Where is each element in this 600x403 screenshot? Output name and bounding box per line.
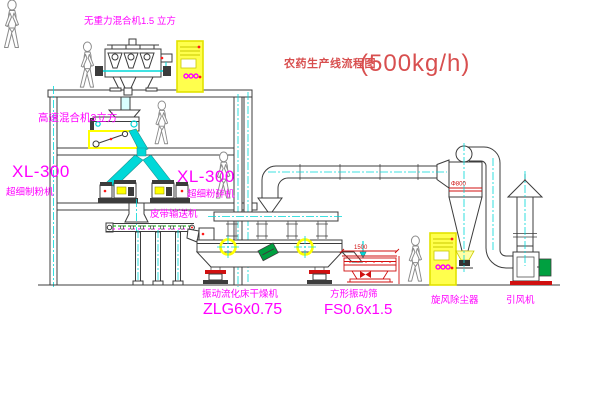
- screen-motor-symbol: [360, 271, 371, 278]
- induced-draft-fan: [510, 246, 552, 285]
- conveyor-legs: [133, 230, 183, 285]
- label-mill-left-name: 超细制粉机: [6, 186, 54, 198]
- person-figure: [155, 101, 168, 144]
- high-speed-mixer: [89, 97, 148, 152]
- label-mill-right-name: 超细粉碎机: [187, 188, 235, 200]
- dimension-screen-length: 1500: [354, 245, 368, 251]
- dryer-support-right: [307, 267, 332, 284]
- title-capacity: (500kg/h): [360, 50, 470, 77]
- fluid-bed-dryer: [197, 212, 362, 284]
- label-screen-model: FS0.6x1.5: [324, 301, 392, 318]
- dimension-cyclone-diameter: Φ800: [451, 182, 466, 188]
- cad-flow-diagram-screenshot: 无重力混合机1.5 立方 高速混合机3立方 XL-300 超细制粉机 XL-30…: [0, 0, 600, 403]
- label-fan: 引风机: [506, 294, 535, 306]
- control-cabinet-right: [430, 233, 456, 285]
- control-cabinet-top: [177, 41, 203, 92]
- label-screen-name: 方形振动筛: [330, 288, 378, 300]
- label-mill-left-model: XL-300: [12, 162, 70, 181]
- vibrating-screen: [340, 241, 399, 284]
- label-dryer-name: 振动流化床干燥机: [202, 288, 279, 300]
- dryer-support-left: [203, 267, 228, 284]
- label-dryer-model: ZLG6x0.75: [203, 301, 282, 318]
- person-figure: [80, 42, 93, 87]
- dryer-inlet-box: [199, 228, 214, 240]
- fan-base: [510, 281, 552, 285]
- person-figure-template: [5, 0, 19, 48]
- belt-conveyor: [106, 223, 199, 285]
- drawing-title: 农药生产线流程图 (500kg/h): [283, 50, 470, 77]
- label-gravity-mixer: 无重力混合机1.5 立方: [84, 15, 176, 27]
- cad-drawing: 无重力混合机1.5 立方 高速混合机3立方 XL-300 超细制粉机 XL-30…: [0, 0, 600, 403]
- mill-left: [98, 180, 138, 203]
- label-belt-conveyor: 皮带输送机: [150, 208, 198, 220]
- label-cyclone: 旋风除尘器: [431, 294, 479, 306]
- gravity-free-mixer: [95, 39, 172, 95]
- dryer-discharge-chute: [342, 252, 362, 262]
- exhaust-duct: [258, 160, 449, 212]
- label-high-speed-mixer: 高速混合机3立方: [38, 111, 117, 124]
- label-mill-right-model: XL-300: [177, 167, 235, 186]
- fan-motor: [539, 259, 551, 276]
- person-figure: [408, 236, 421, 281]
